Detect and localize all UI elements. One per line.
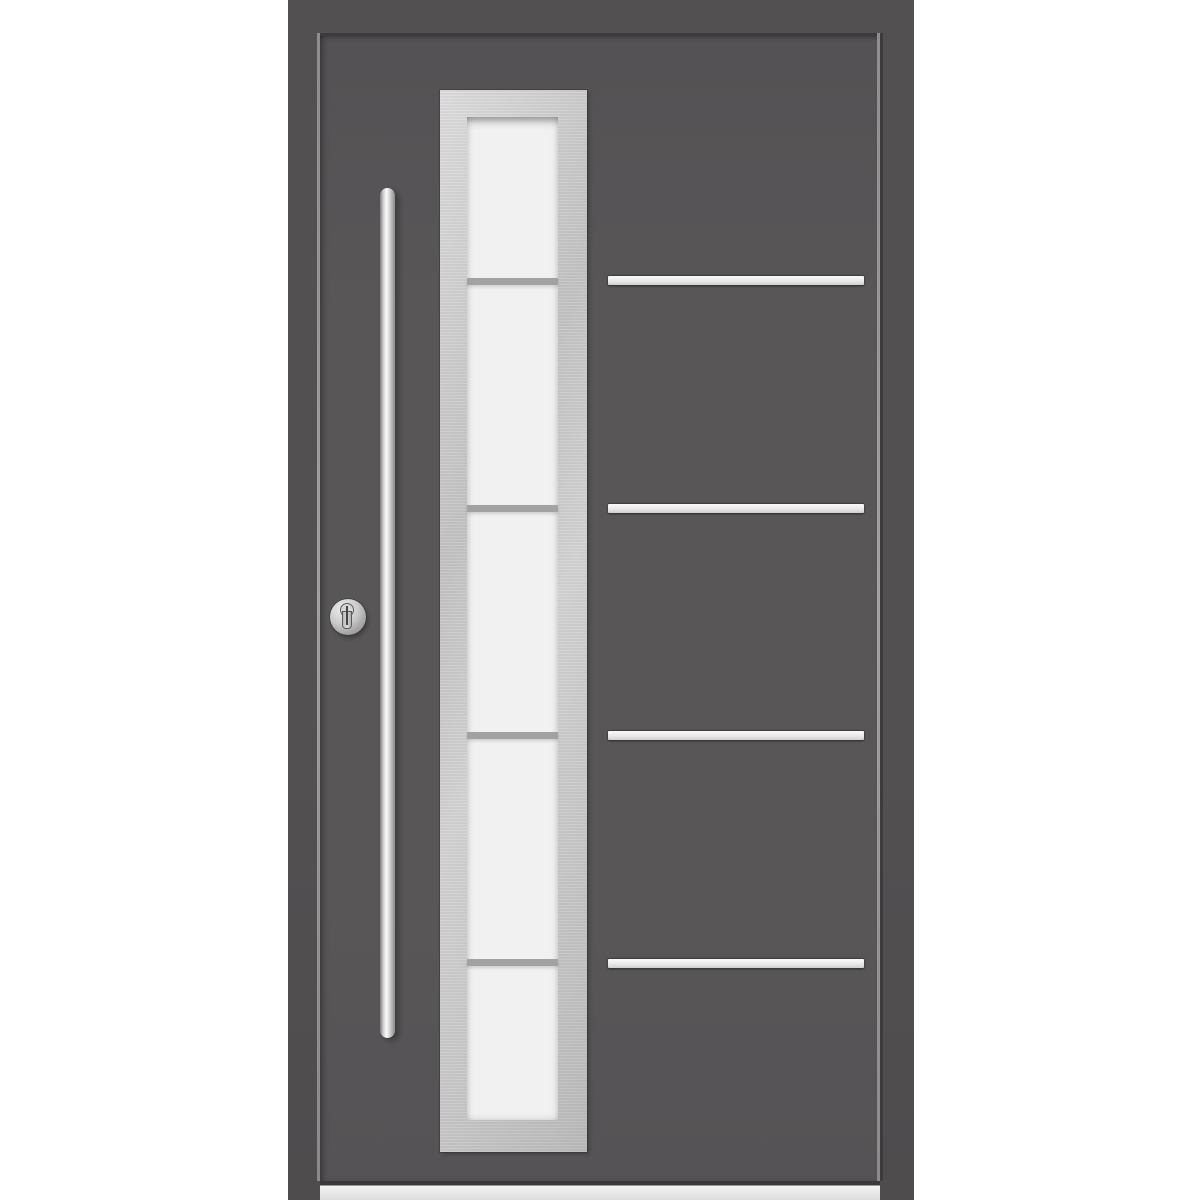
door-leaf bbox=[320, 36, 877, 1181]
frame-leaf-gap-left-highlight bbox=[317, 33, 320, 1181]
glass-divider bbox=[467, 505, 558, 512]
lock-escutcheon bbox=[330, 599, 366, 635]
glass-divider bbox=[467, 959, 558, 966]
glass-divider bbox=[467, 732, 558, 739]
product-photo-canvas bbox=[0, 0, 1200, 1200]
inox-strip bbox=[608, 959, 864, 968]
frame-leaf-gap-top bbox=[320, 33, 880, 36]
inox-strip bbox=[608, 504, 864, 513]
glazing-steel-surround bbox=[440, 90, 587, 1152]
frame-leaf-gap-right-shadow bbox=[880, 33, 883, 1181]
frosted-glass-panel bbox=[467, 117, 558, 1120]
keyway-slot bbox=[346, 606, 348, 625]
door-threshold bbox=[320, 1181, 880, 1200]
inox-strip bbox=[608, 731, 864, 740]
inox-strip bbox=[608, 276, 864, 285]
glass-divider bbox=[467, 278, 558, 285]
bar-handle bbox=[380, 188, 395, 1038]
